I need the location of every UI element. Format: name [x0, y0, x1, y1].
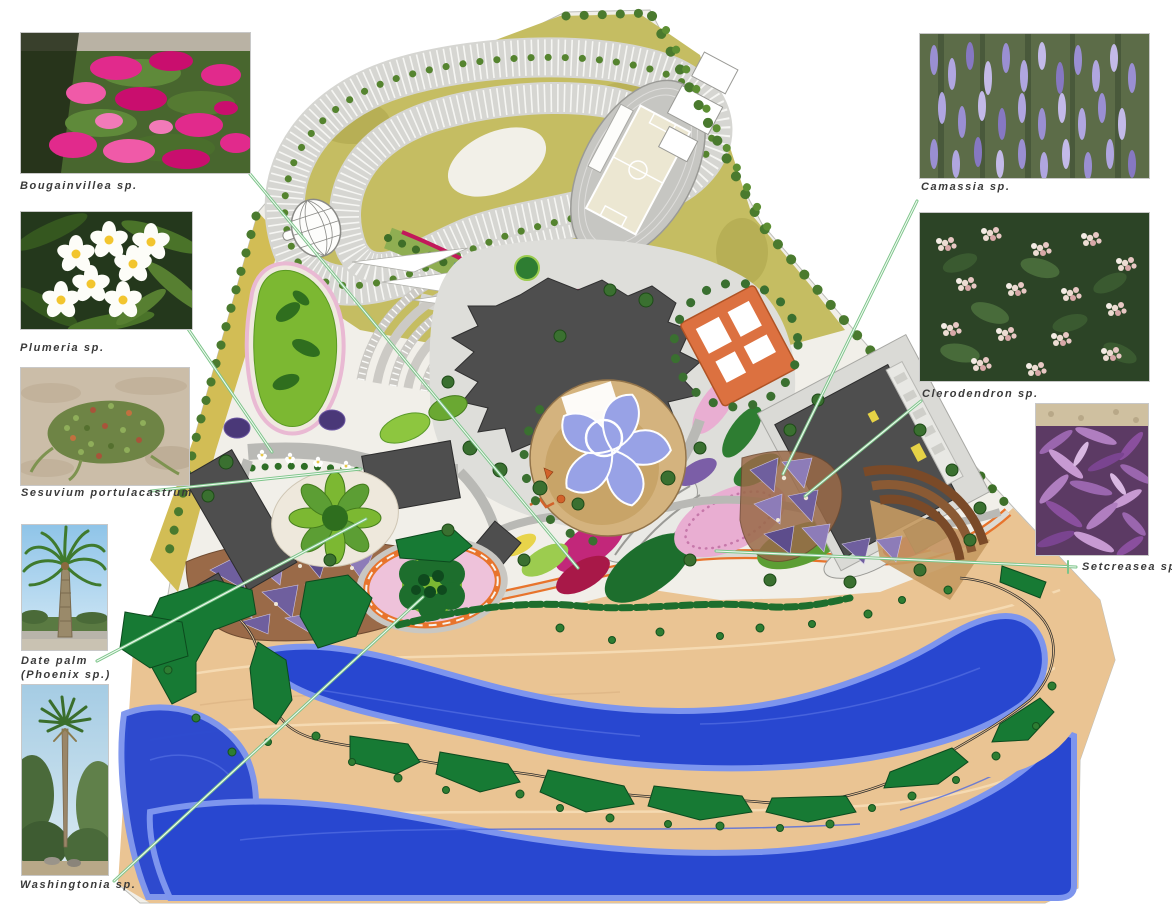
poster-canvas: Bougainvillea sp. Plumeria sp. Sesuvium …	[0, 0, 1172, 911]
photo-camassia	[919, 33, 1150, 179]
photo-plumeria	[20, 211, 193, 330]
photo-clerodendron	[919, 212, 1150, 382]
photo-setcreasea	[1035, 403, 1149, 556]
label-clerodendron: Clerodendron sp.	[922, 387, 1039, 401]
teardrop-lawn	[254, 270, 337, 426]
label-bougainvillea: Bougainvillea sp.	[20, 179, 138, 193]
label-date-palm: Date palm (Phoenix sp.)	[21, 654, 111, 682]
photo-sesuvium	[20, 367, 190, 486]
photo-date-palm	[21, 524, 108, 651]
photo-bougainvillea	[20, 32, 251, 174]
label-sesuvium: Sesuvium portulacastrum	[21, 486, 193, 500]
label-plumeria: Plumeria sp.	[20, 341, 105, 355]
label-camassia: Camassia sp.	[921, 180, 1011, 194]
label-setcreasea: Setcreasea sp.	[1082, 560, 1172, 574]
label-washingtonia: Washingtonia sp.	[20, 878, 136, 892]
photo-washingtonia	[21, 684, 109, 876]
large-tree	[515, 256, 539, 280]
